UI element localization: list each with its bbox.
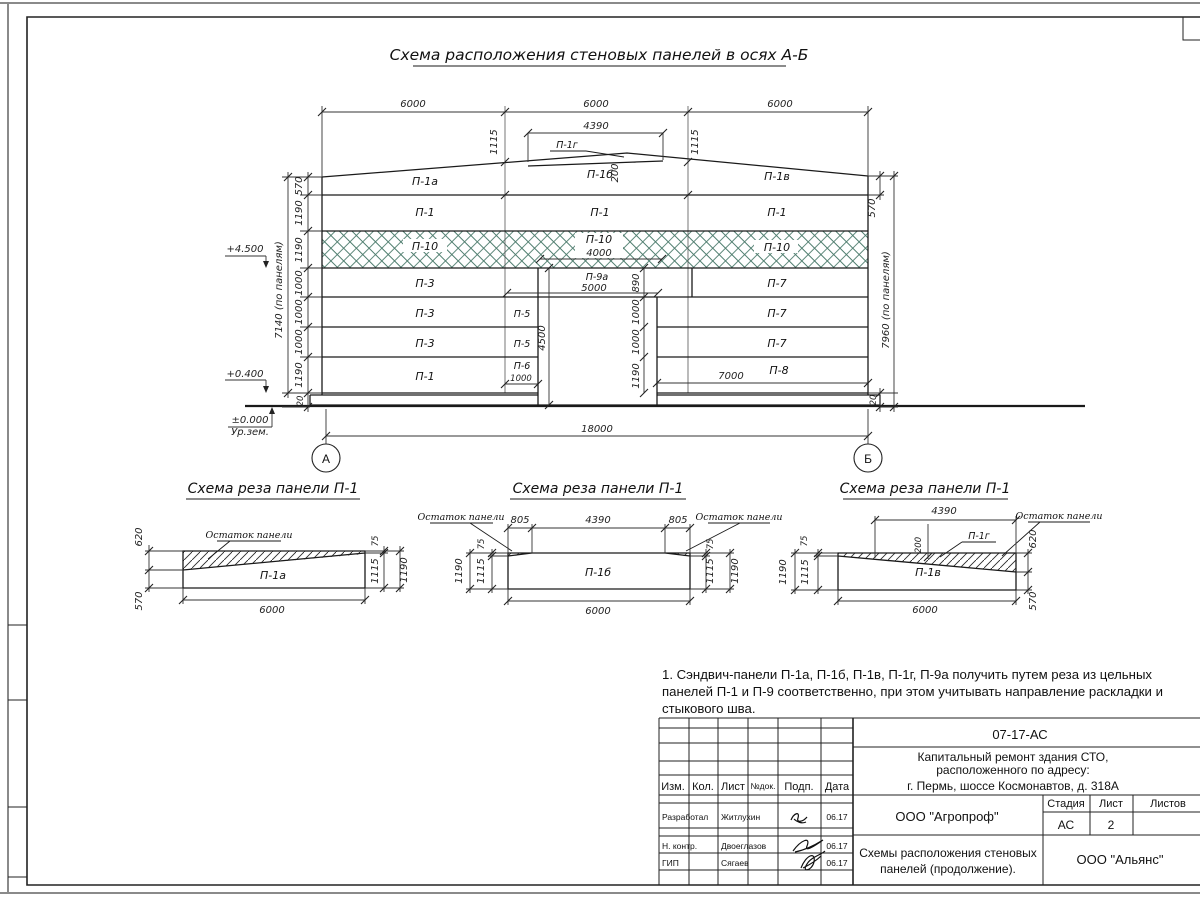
dim-1115-left: 1115	[489, 129, 500, 154]
panel-p3-1: П-3	[415, 277, 434, 290]
cut2-805r: 805	[668, 515, 687, 526]
drawing-sheet: Схема расположения стеновых панелей в ос…	[0, 0, 1200, 900]
panel-p1-r2l: П-1	[415, 206, 434, 219]
left-total: 7140 (по панелям)	[274, 241, 285, 339]
tb-org: ООО "Агропроф"	[895, 809, 999, 824]
lchain-1190c: 1190	[294, 362, 305, 387]
tb-sheet-value: 2	[1108, 818, 1115, 832]
panel-p7-2: П-7	[767, 307, 786, 320]
tb-r3-role: ГИП	[662, 858, 679, 868]
panel-p1-r2r: П-1	[767, 206, 786, 219]
elevation-title: Схема расположения стеновых панелей в ос…	[390, 46, 809, 64]
cut2-remainder-left: Остаток панели	[417, 512, 504, 523]
cut3-remainder-label: Остаток панели	[1015, 511, 1102, 522]
lchain-20: 20	[296, 396, 306, 407]
title-block: Изм. Кол. Лист №док. Подп. Дата Разработ…	[659, 718, 1200, 885]
panel-p10-r: П-10	[764, 241, 790, 254]
label-p1g: П-1г	[556, 140, 579, 151]
lchain-1000a: 1000	[294, 270, 305, 295]
cut1-title: Схема реза панели П-1	[188, 481, 359, 497]
tb-h-izm: Изм.	[661, 781, 685, 793]
cut3-570: 570	[1028, 591, 1039, 610]
panel-p10-l: П-10	[412, 240, 438, 253]
cut3-6000: 6000	[912, 605, 937, 616]
level-0400: +0.400	[226, 369, 263, 380]
lchain-1000c: 1000	[294, 329, 305, 354]
cut2-6000: 6000	[585, 606, 610, 617]
tb-h-sheets: Листов	[1150, 798, 1186, 810]
panel-p5-1: П-5	[514, 309, 531, 320]
tb-r2-role: Н. контр.	[662, 841, 697, 851]
rchain-570: 570	[867, 198, 878, 217]
cut3-4390: 4390	[931, 506, 956, 517]
cut2-1190r: 1190	[730, 558, 741, 583]
lchain-1190b: 1190	[294, 237, 305, 262]
tb-h-podp: Подп.	[784, 781, 813, 793]
cut1-remainder-label: Остаток панели	[205, 530, 292, 541]
rchain-20: 20	[869, 395, 879, 406]
dim-6000-2: 6000	[583, 99, 608, 110]
panel-p3-2: П-3	[415, 307, 434, 320]
axis-letter-b: Б	[864, 452, 872, 466]
cut3-p1g-label: П-1г	[968, 531, 991, 542]
tb-project-line1: Капитальный ремонт здания СТО,	[918, 750, 1109, 764]
tb-r2-name: Двоеглазов	[721, 841, 767, 851]
cut1-620: 620	[134, 527, 145, 546]
cut2-1190l: 1190	[454, 558, 465, 583]
cut1-1190: 1190	[399, 557, 410, 582]
door-1000a: 1000	[631, 299, 642, 324]
tb-h-stage: Стадия	[1047, 798, 1085, 810]
tb-h-list: Лист	[721, 781, 745, 793]
panel-p3-3: П-3	[415, 337, 434, 350]
door-1190: 1190	[631, 363, 642, 388]
level-arrow-zero	[269, 407, 275, 414]
dim-18000: 18000	[581, 424, 613, 435]
dim-1000-p6: 1000	[510, 374, 532, 384]
dim-6000-3: 6000	[767, 99, 792, 110]
left-edge-boxes	[8, 625, 27, 877]
elevation-drawing: Схема расположения стеновых панелей в ос…	[225, 46, 1085, 472]
tb-r1-role: Разработал	[662, 812, 708, 822]
tb-r1-name: Житлухин	[721, 812, 761, 822]
panel-p10-m: П-10	[586, 233, 612, 246]
level-arrow-top	[263, 261, 269, 268]
corner-stamp-box	[1183, 17, 1200, 40]
tb-h-data: Дата	[825, 781, 850, 793]
tb-r3-name: Сягаев	[721, 858, 749, 868]
panel-p5-2: П-5	[514, 339, 531, 350]
cut2-75r: 75	[706, 539, 716, 550]
level-0000: ±0.000	[231, 415, 268, 426]
panel-p1-bot: П-1	[415, 370, 434, 383]
tb-project-line2: расположенного по адресу:	[936, 763, 1090, 777]
tb-h-ndok: №док.	[751, 781, 776, 791]
signature-1	[791, 814, 807, 823]
note-text: 1. Сэндвич-панели П-1а, П-1б, П-1в, П-1г…	[662, 666, 1198, 717]
cut2-dim-lines	[466, 524, 734, 605]
tb-sheet-title-line2: панелей (продолжение).	[880, 862, 1016, 876]
cut2-title: Схема реза панели П-1	[513, 481, 684, 497]
axis-letter-a: А	[322, 452, 330, 466]
cut2-panel-label: П-1б	[585, 566, 611, 579]
cut1-1115: 1115	[370, 558, 381, 583]
tb-r1-date: 06.17	[826, 812, 848, 822]
panel-p1v: П-1в	[764, 170, 790, 183]
cut2-75l: 75	[477, 539, 487, 550]
cut3-200: 200	[914, 537, 924, 553]
ground-label: Ур.зем.	[231, 427, 269, 438]
cut1-6000: 6000	[259, 605, 284, 616]
dim-5000: 5000	[581, 283, 606, 294]
lchain-1190a: 1190	[294, 200, 305, 225]
panel-p7-1: П-7	[767, 277, 786, 290]
level-arrow-mid	[263, 386, 269, 393]
tb-sheet-title-line1: Схемы расположения стеновых	[859, 846, 1037, 860]
cut1-75: 75	[371, 536, 381, 547]
cut3-title: Схема реза панели П-1	[840, 481, 1011, 497]
panel-p6: П-6	[514, 361, 531, 372]
cut1-570: 570	[134, 591, 145, 610]
tb-h-kol: Кол.	[692, 781, 714, 793]
panel-p1-r2m: П-1	[590, 206, 609, 219]
drawing-canvas: Схема расположения стеновых панелей в ос…	[0, 0, 1200, 900]
cut3-75: 75	[800, 536, 810, 547]
cut2-805l: 805	[510, 515, 529, 526]
tb-project-line3: г. Пермь, шоссе Космонавтов, д. 318А	[907, 779, 1119, 793]
level-4500: +4.500	[226, 244, 263, 255]
panel-p1b: П-1б	[587, 168, 613, 181]
tb-stage-value: АС	[1058, 818, 1075, 832]
tb-h-sheet: Лист	[1099, 798, 1123, 810]
signature-2	[793, 840, 823, 852]
cut1-panel-label: П-1а	[260, 569, 286, 582]
cut3-620: 620	[1028, 529, 1039, 548]
door-4500: 4500	[537, 325, 548, 350]
cut2-remainder-right: Остаток панели	[695, 512, 782, 523]
panel-p7-3: П-7	[767, 337, 786, 350]
door-1000b: 1000	[631, 329, 642, 354]
cut2-1115l: 1115	[476, 558, 487, 583]
lchain-1000b: 1000	[294, 299, 305, 324]
dim-7000: 7000	[718, 371, 743, 382]
cut3-1190: 1190	[778, 559, 789, 584]
cut3-panel-label: П-1в	[915, 566, 941, 579]
tb-r3-date: 06.17	[826, 858, 848, 868]
dim-4000: 4000	[586, 248, 611, 259]
panel-p8: П-8	[769, 364, 788, 377]
cut3-1115: 1115	[800, 559, 811, 584]
dim-4390: 4390	[583, 121, 608, 132]
panel-p1a: П-1а	[412, 175, 438, 188]
cut2-dim-ticks	[466, 524, 734, 605]
dim-1115-right: 1115	[690, 129, 701, 154]
lchain-570: 570	[294, 176, 305, 195]
cut3-remainder-leader	[1002, 522, 1090, 556]
tb-org2: ООО "Альянс"	[1077, 852, 1164, 867]
dim-6000-1: 6000	[400, 99, 425, 110]
tb-r2-date: 06.17	[826, 841, 848, 851]
cut-scheme-3: Схема реза панели П-1 Остаток панели П-1…	[778, 481, 1103, 616]
cut2-4390: 4390	[585, 515, 610, 526]
cut-scheme-1: Схема реза панели П-1 Остаток панели П-1…	[134, 481, 410, 616]
panel-p9a: П-9а	[586, 272, 609, 283]
cut-scheme-2: Схема реза панели П-1 Остаток панели Ост…	[417, 481, 782, 617]
right-total: 7960 (по панелям)	[881, 251, 892, 349]
cut2-1115r: 1115	[705, 558, 716, 583]
tb-doc-no: 07-17-АС	[992, 727, 1047, 742]
door-890: 890	[631, 273, 642, 292]
